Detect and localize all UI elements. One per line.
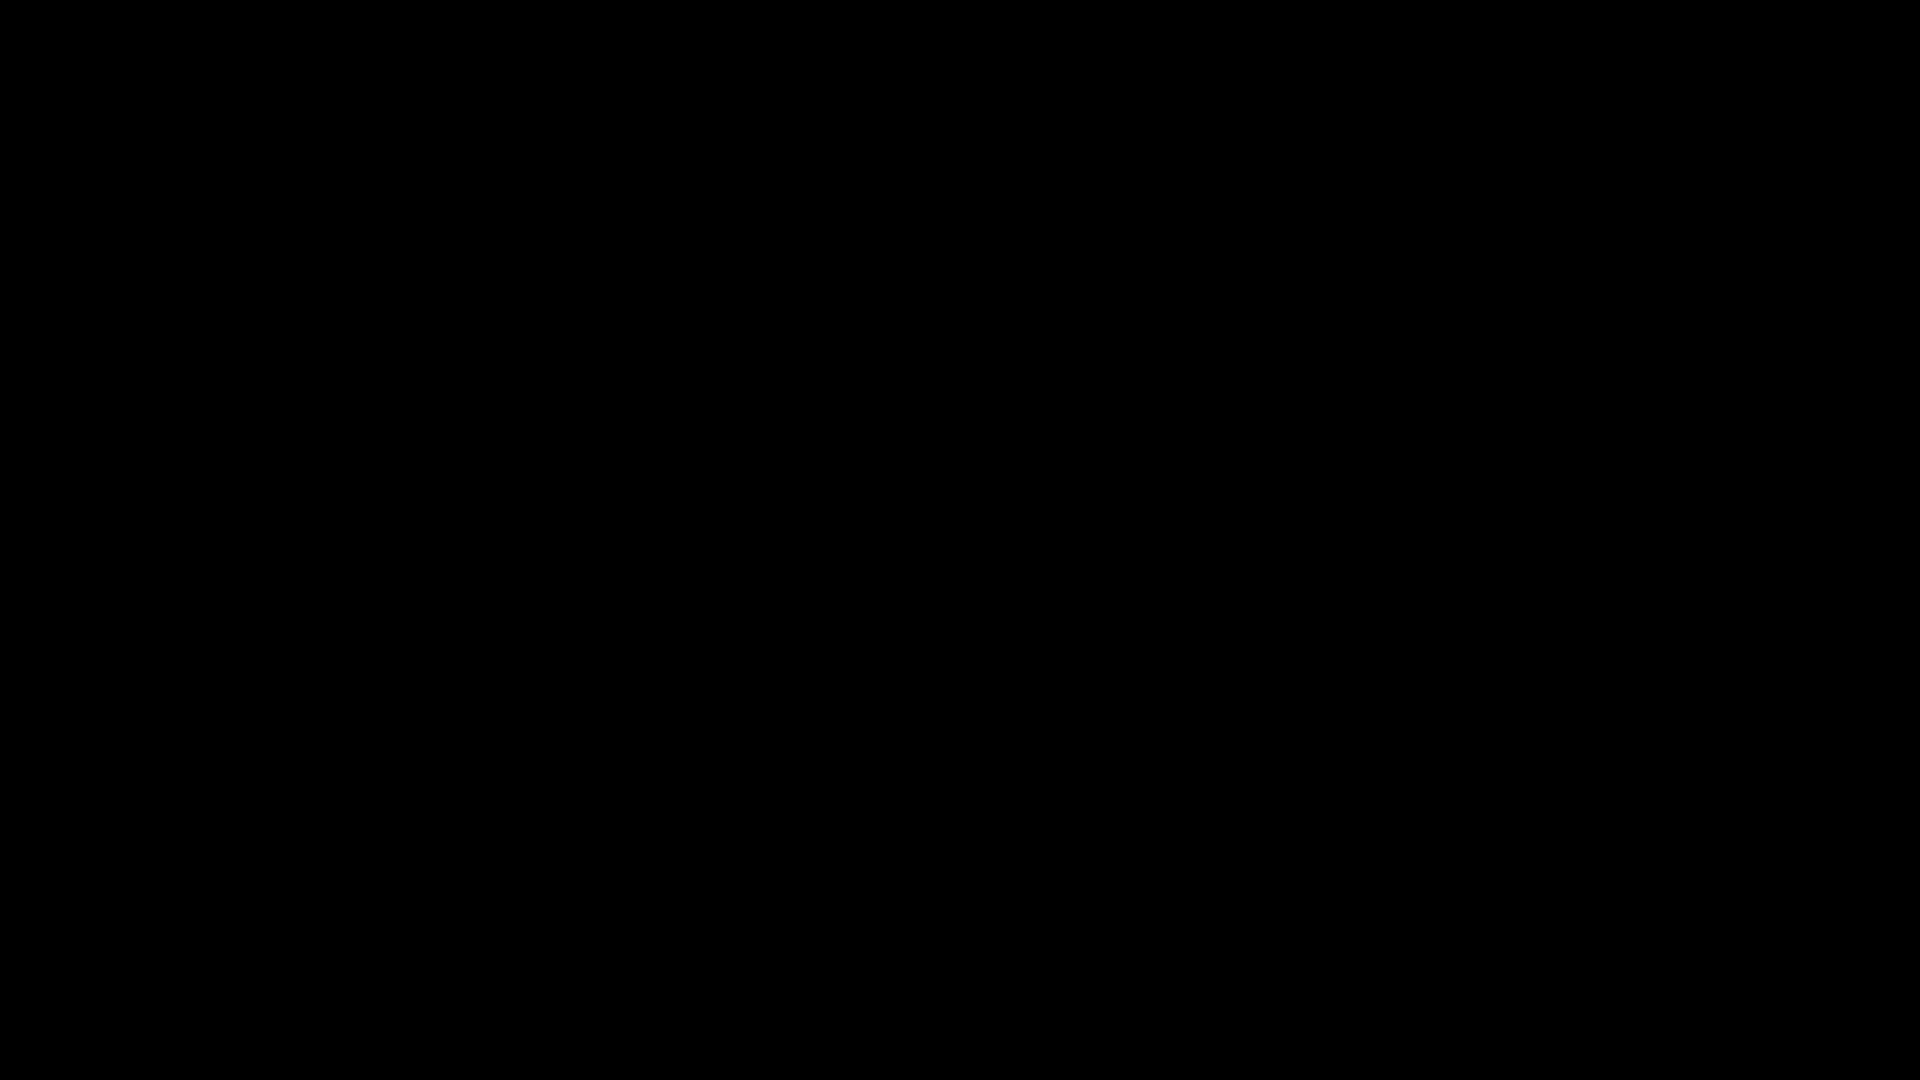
game-scene <box>0 0 1920 1080</box>
game-viewport <box>0 0 1920 1080</box>
